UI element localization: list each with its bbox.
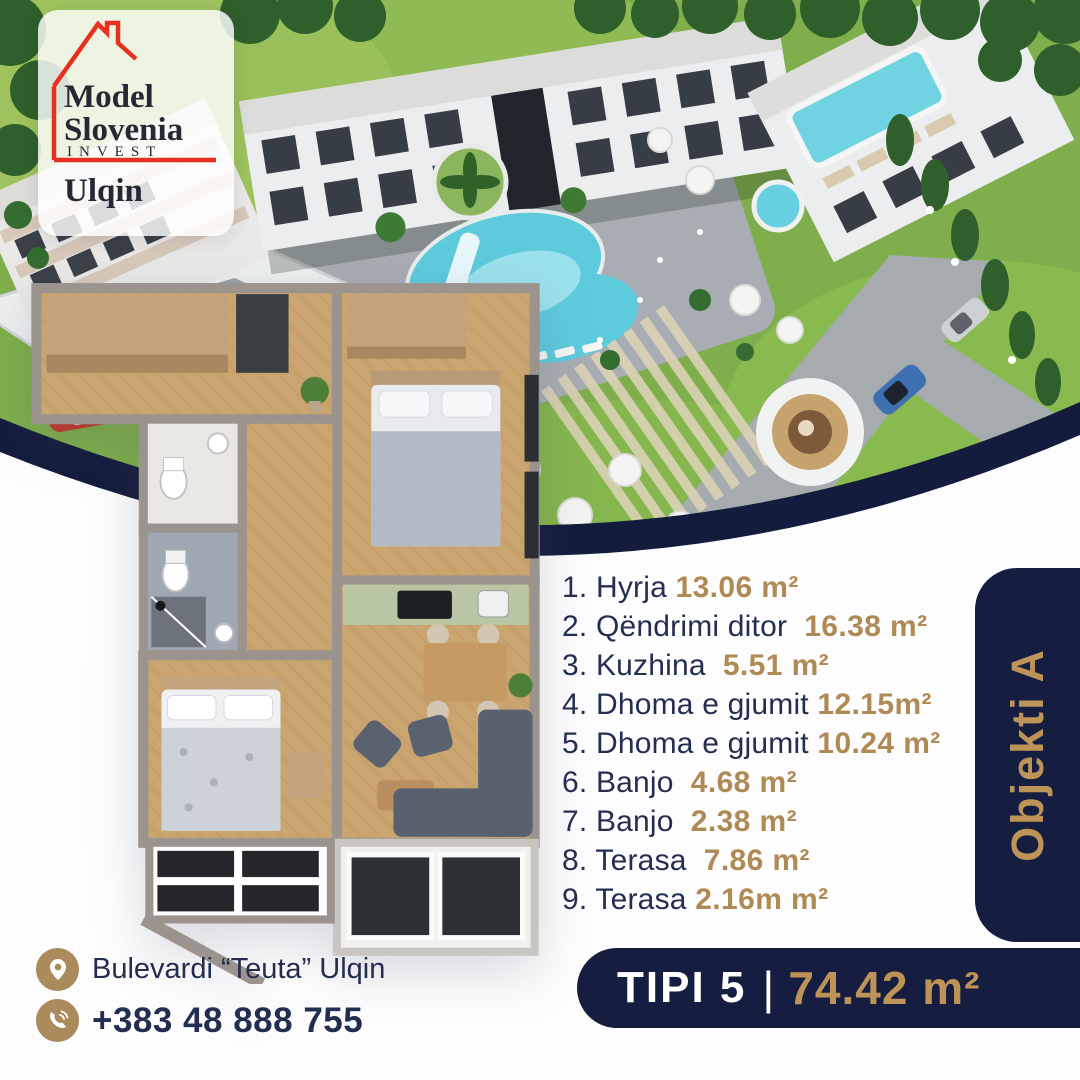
room-label: 4. Dhoma e gjumit bbox=[562, 689, 817, 720]
type-divider: | bbox=[762, 961, 774, 1015]
room-label: 2. Qëndrimi ditor bbox=[562, 611, 804, 642]
room-list: 1. Hyrja 13.06 m² 2. Qëndrimi ditor 16.3… bbox=[562, 572, 941, 923]
room-label: 3. Kuzhina bbox=[562, 650, 723, 681]
room-list-item: 6. Banjo 4.68 m² bbox=[562, 767, 941, 798]
contact-block: Bulevardi “Teuta” Ulqin +383 48 888 755 bbox=[36, 948, 385, 1042]
floor-plan-3d bbox=[22, 278, 547, 984]
room-label: 5. Dhoma e gjumit bbox=[562, 728, 817, 759]
room-area-value: 16.38 m² bbox=[804, 611, 927, 642]
room-area-value: 4.68 m² bbox=[691, 767, 797, 798]
phone-text: +383 48 888 755 bbox=[92, 1001, 363, 1041]
room-area-value: 2.16m m² bbox=[695, 884, 828, 915]
phone-call-icon bbox=[36, 999, 79, 1042]
room-label: 8. Terasa bbox=[562, 845, 704, 876]
room-area-value: 12.15m² bbox=[817, 689, 932, 720]
logo-badge: Model Slovenia INVEST Ulqin bbox=[38, 10, 234, 236]
room-list-item: 8. Terasa 7.86 m² bbox=[562, 845, 941, 876]
room-area-value: 7.86 m² bbox=[704, 845, 810, 876]
room-list-item: 5. Dhoma e gjumit 10.24 m² bbox=[562, 728, 941, 759]
object-badge-label: Objekti A bbox=[1002, 648, 1054, 862]
room-list-item: 9. Terasa 2.16m m² bbox=[562, 884, 941, 915]
room-area-value: 5.51 m² bbox=[723, 650, 829, 681]
address-row: Bulevardi “Teuta” Ulqin bbox=[36, 948, 385, 991]
room-list-item: 4. Dhoma e gjumit 12.15m² bbox=[562, 689, 941, 720]
room-area-value: 13.06 m² bbox=[676, 572, 799, 603]
phone-row: +383 48 888 755 bbox=[36, 999, 385, 1042]
room-list-item: 3. Kuzhina 5.51 m² bbox=[562, 650, 941, 681]
location-pin-icon bbox=[36, 948, 79, 991]
room-area-value: 10.24 m² bbox=[817, 728, 940, 759]
room-label: 1. Hyrja bbox=[562, 572, 676, 603]
address-text: Bulevardi “Teuta” Ulqin bbox=[92, 953, 385, 986]
room-list-item: 7. Banjo 2.38 m² bbox=[562, 806, 941, 837]
room-list-item: 2. Qëndrimi ditor 16.38 m² bbox=[562, 611, 941, 642]
room-area-value: 2.38 m² bbox=[691, 806, 797, 837]
room-label: 9. Terasa bbox=[562, 884, 695, 915]
logo-line-invest: INVEST bbox=[67, 144, 162, 160]
object-badge: Objekti A bbox=[975, 568, 1080, 942]
logo-line-ulqin: Ulqin bbox=[64, 173, 143, 209]
type-label: TIPI 5 bbox=[617, 963, 746, 1013]
type-area-bar: TIPI 5 | 74.42 m² bbox=[577, 948, 1080, 1028]
room-label: 7. Banjo bbox=[562, 806, 691, 837]
logo-line-model: Model bbox=[64, 79, 154, 115]
flyer-canvas: Model Slovenia INVEST Ulqin 1. Hyrja 13.… bbox=[0, 0, 1080, 1080]
logo-line-slovenia: Slovenia bbox=[64, 112, 183, 148]
total-area-value: 74.42 m² bbox=[788, 961, 980, 1015]
room-list-item: 1. Hyrja 13.06 m² bbox=[562, 572, 941, 603]
room-label: 6. Banjo bbox=[562, 767, 691, 798]
